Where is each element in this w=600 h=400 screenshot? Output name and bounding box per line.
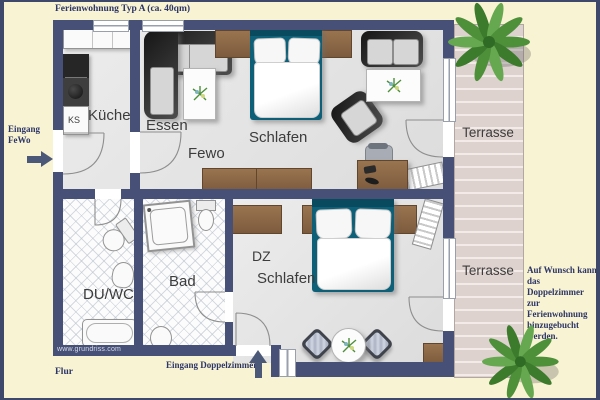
room-label-terrasse-bottom: Terrasse	[454, 263, 522, 278]
room-label-duwc: DU/WC	[83, 286, 134, 303]
arrow-up-icon	[255, 363, 262, 378]
arrow-right-head-icon	[41, 151, 53, 167]
plant-icon	[443, 2, 535, 84]
room-label-kueche: Küche	[88, 107, 131, 124]
label-eingang-doppelzimmer: Eingang Doppelzimmer	[166, 360, 257, 371]
plant-icon	[472, 325, 572, 400]
arrow-right-icon	[27, 156, 41, 163]
room-label-terrasse-top: Terrasse	[454, 125, 522, 140]
floorplan-canvas: Ferienwohnung Typ A (ca. 40qm) KS	[0, 0, 600, 400]
room-label-bad: Bad	[169, 273, 196, 290]
room-label-schlafen-dz: Schlafen	[257, 270, 315, 287]
room-label-schlafen-fewo: Schlafen	[249, 129, 307, 146]
plan-title: Ferienwohnung Typ A (ca. 40qm)	[55, 4, 190, 15]
room-label-essen: Essen	[146, 117, 188, 134]
room-label-dz: DZ	[252, 248, 271, 264]
watermark: www.grundriss.com	[57, 346, 121, 353]
label-eingang-fewo: Eingang FeWo	[8, 124, 40, 146]
arrow-up-head-icon	[249, 350, 267, 363]
label-flur: Flur	[55, 367, 73, 378]
room-label-fewo: Fewo	[188, 145, 225, 162]
